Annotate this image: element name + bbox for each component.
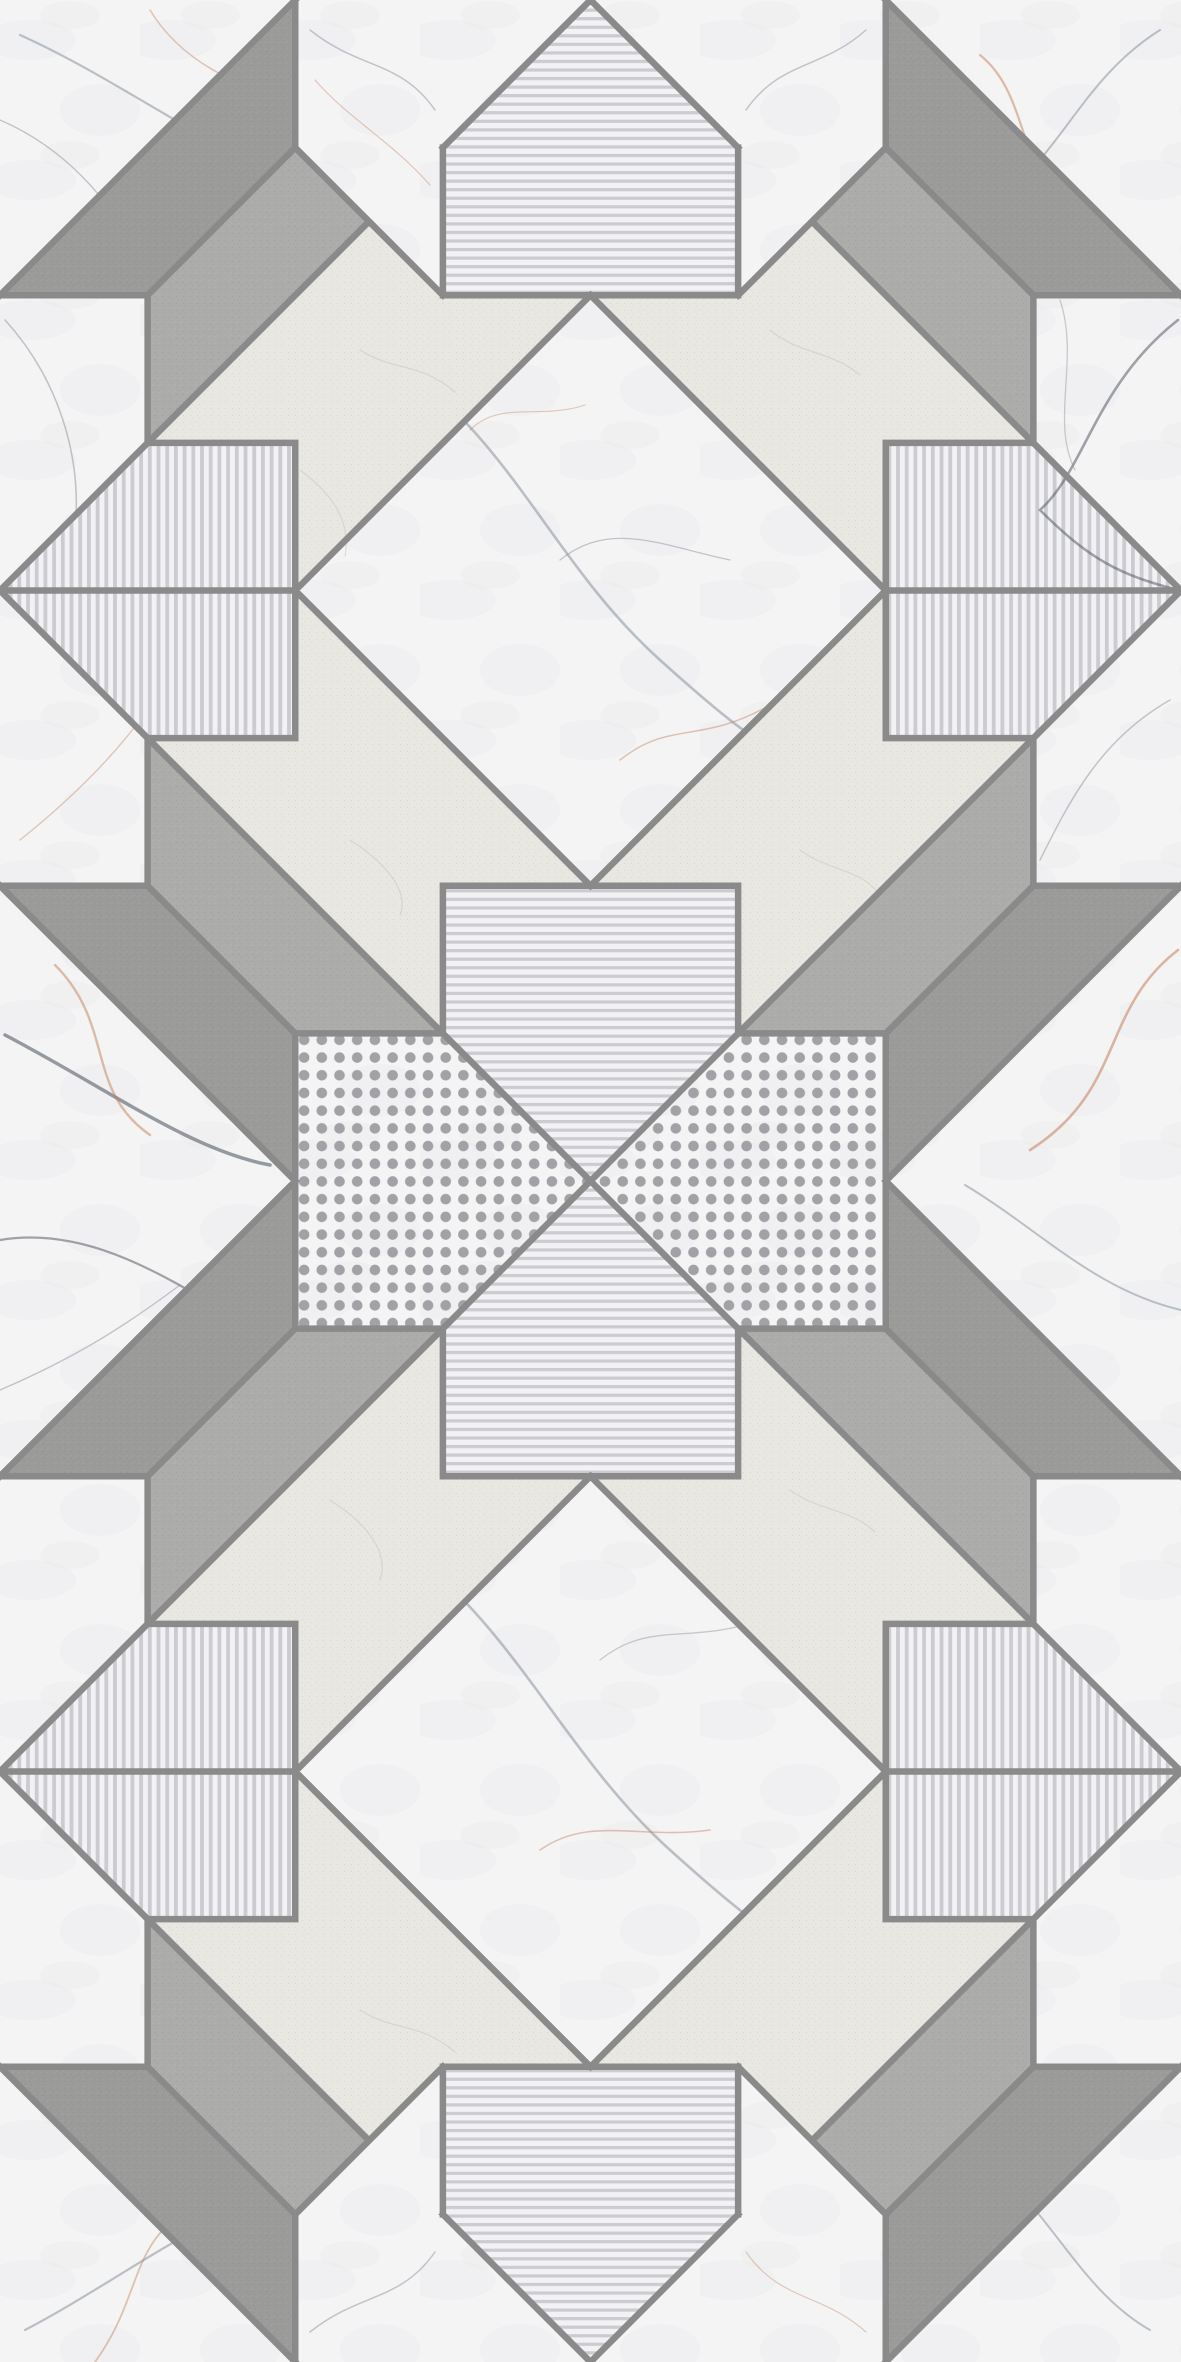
marble-patchwork-tile-image	[0, 0, 1181, 2362]
tile-pattern-stage	[0, 0, 1181, 2362]
